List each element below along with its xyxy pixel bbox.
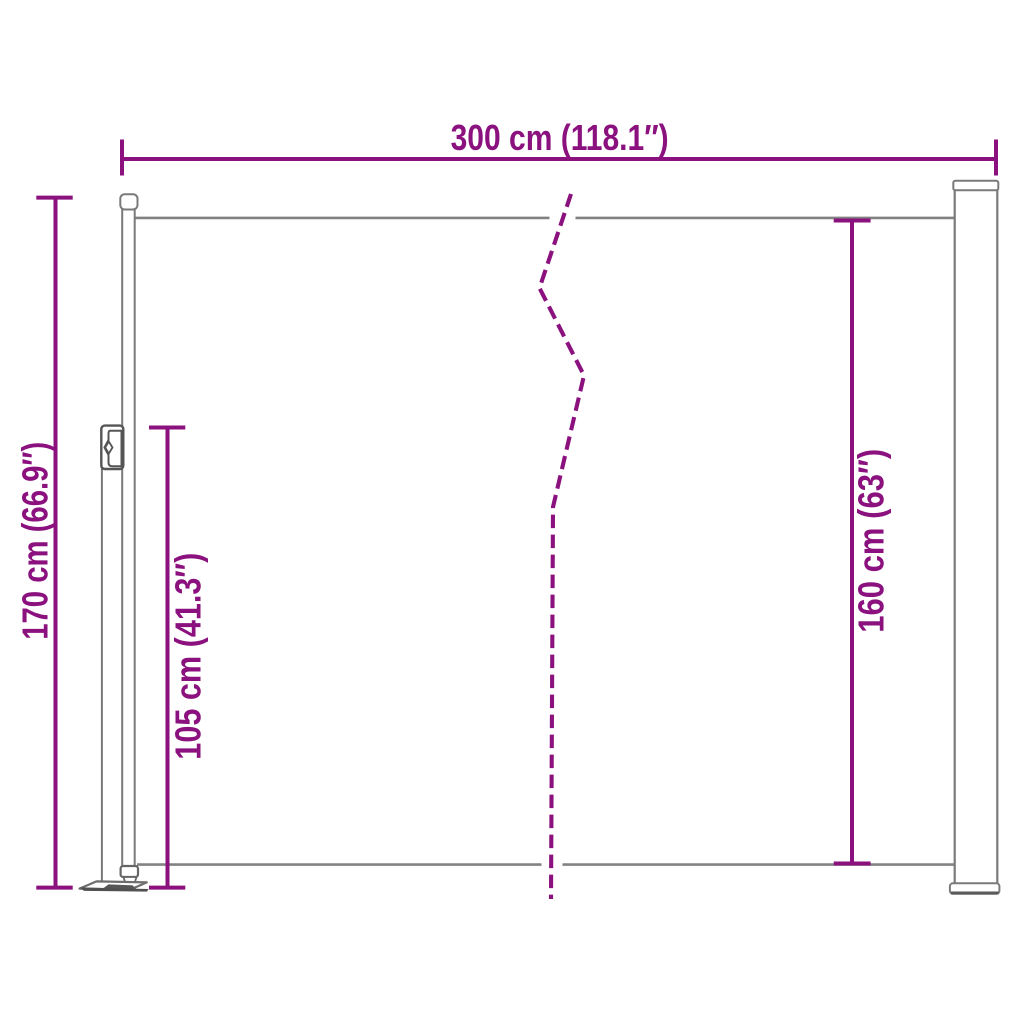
svg-text:160 cm (63″): 160 cm (63″) xyxy=(851,449,892,633)
svg-text:105 cm (41.3″): 105 cm (41.3″) xyxy=(168,553,209,760)
svg-text:170 cm (66.9″): 170 cm (66.9″) xyxy=(15,442,56,640)
svg-text:300 cm (118.1″): 300 cm (118.1″) xyxy=(451,117,669,158)
